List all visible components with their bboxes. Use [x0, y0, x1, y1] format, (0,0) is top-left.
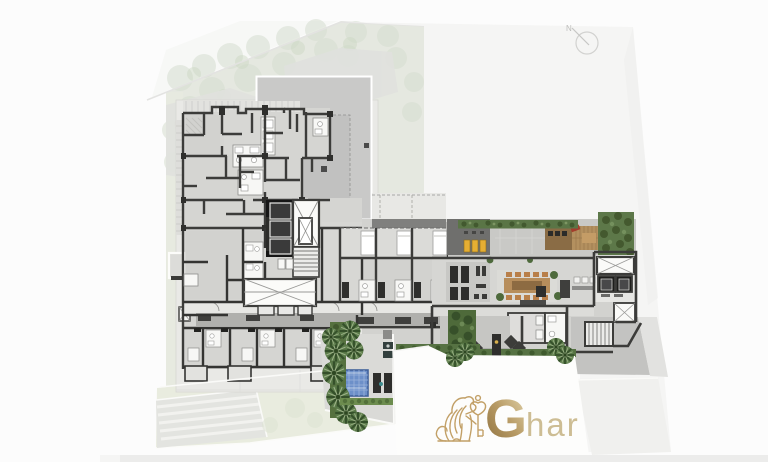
svg-text:N: N	[566, 24, 572, 33]
svg-text:har: har	[526, 406, 580, 443]
svg-text:G: G	[485, 389, 527, 449]
